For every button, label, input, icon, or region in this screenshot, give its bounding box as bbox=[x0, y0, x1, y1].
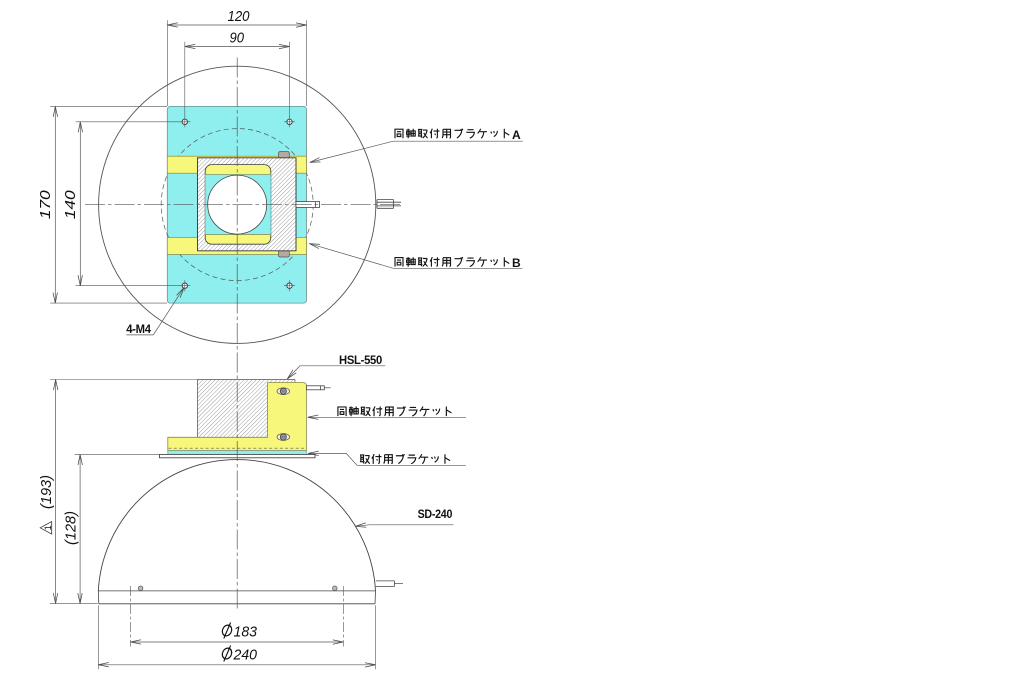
svg-text:B: B bbox=[512, 256, 521, 270]
svg-text:140: 140 bbox=[62, 190, 79, 220]
svg-text:90: 90 bbox=[229, 30, 244, 47]
svg-text:4-M4: 4-M4 bbox=[126, 322, 151, 336]
svg-text:183: 183 bbox=[234, 624, 258, 641]
svg-text:120: 120 bbox=[228, 8, 251, 25]
svg-text:HSL-550: HSL-550 bbox=[339, 353, 383, 367]
svg-text:1: 1 bbox=[43, 525, 53, 530]
svg-text:170: 170 bbox=[37, 190, 54, 220]
svg-text:A: A bbox=[512, 128, 521, 142]
svg-text:240: 240 bbox=[233, 647, 258, 664]
svg-text:(128): (128) bbox=[63, 511, 80, 545]
svg-text:(193): (193) bbox=[38, 475, 55, 509]
svg-text:SD-240: SD-240 bbox=[418, 507, 453, 521]
